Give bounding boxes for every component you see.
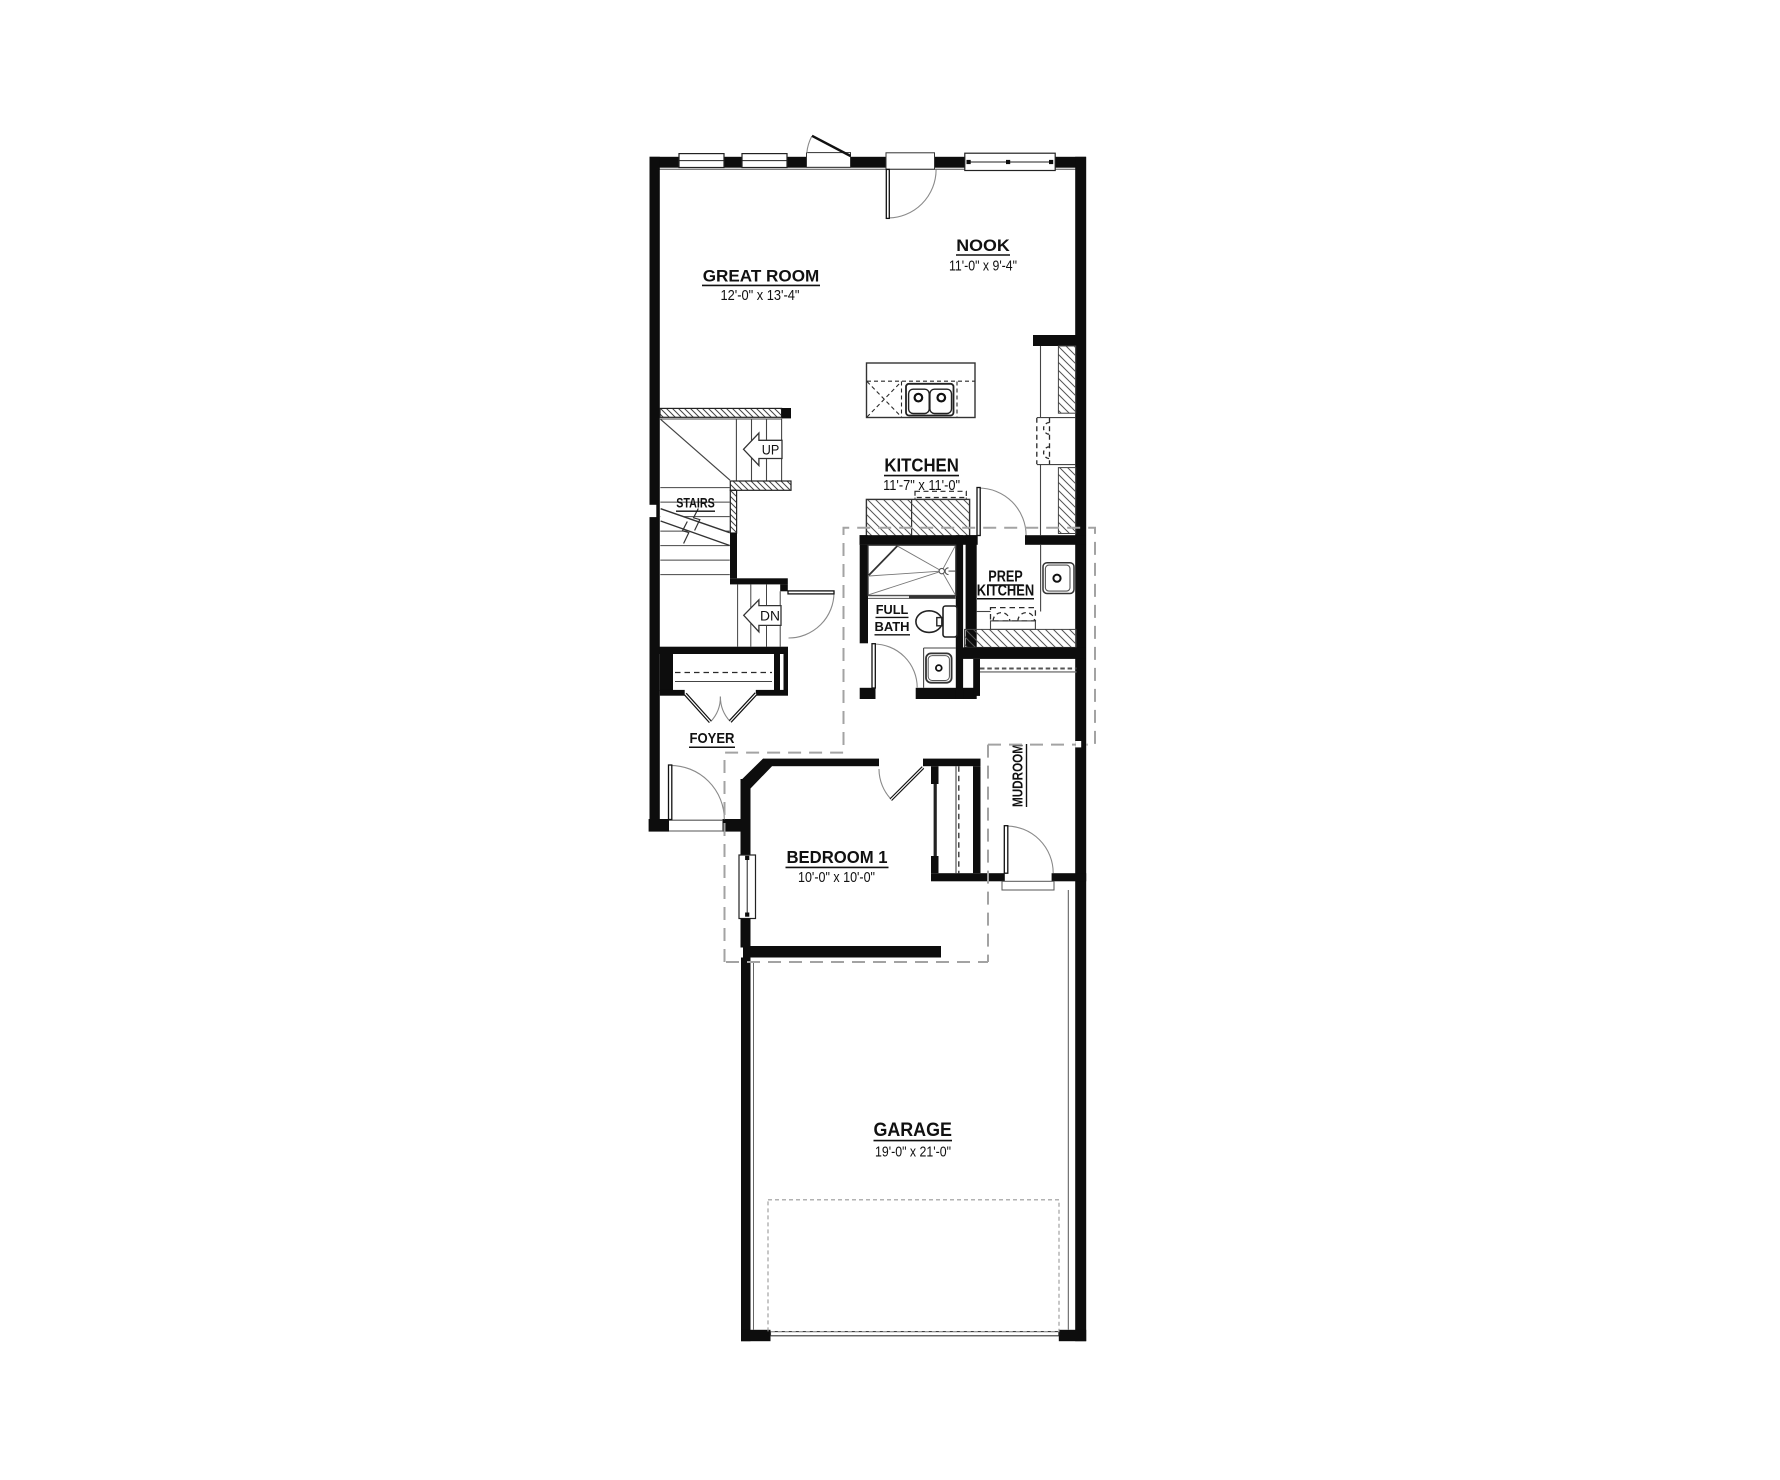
svg-text:11'-7" x 11'-0": 11'-7" x 11'-0"	[883, 477, 960, 494]
svg-text:12'-0" x 13'-4": 12'-0" x 13'-4"	[721, 287, 800, 304]
svg-text:GREAT ROOM: GREAT ROOM	[703, 267, 820, 286]
svg-text:UP: UP	[762, 441, 780, 457]
svg-text:MUDROOM: MUDROOM	[1010, 744, 1027, 807]
svg-text:BATH: BATH	[875, 620, 910, 634]
svg-text:NOOK: NOOK	[956, 236, 1010, 255]
svg-text:STAIRS: STAIRS	[676, 495, 715, 511]
svg-text:FOYER: FOYER	[690, 730, 735, 747]
svg-text:GARAGE: GARAGE	[873, 1120, 952, 1141]
svg-text:KITCHEN: KITCHEN	[884, 456, 959, 476]
svg-text:BEDROOM 1: BEDROOM 1	[787, 847, 888, 867]
svg-text:19'-0" x 21'-0": 19'-0" x 21'-0"	[875, 1144, 951, 1161]
svg-text:11'-0" x 9'-4": 11'-0" x 9'-4"	[949, 258, 1017, 275]
svg-text:FULL: FULL	[876, 603, 909, 617]
svg-text:KITCHEN: KITCHEN	[977, 582, 1035, 599]
svg-text:10'-0" x 10'-0": 10'-0" x 10'-0"	[798, 869, 875, 886]
svg-text:DN: DN	[760, 607, 780, 623]
